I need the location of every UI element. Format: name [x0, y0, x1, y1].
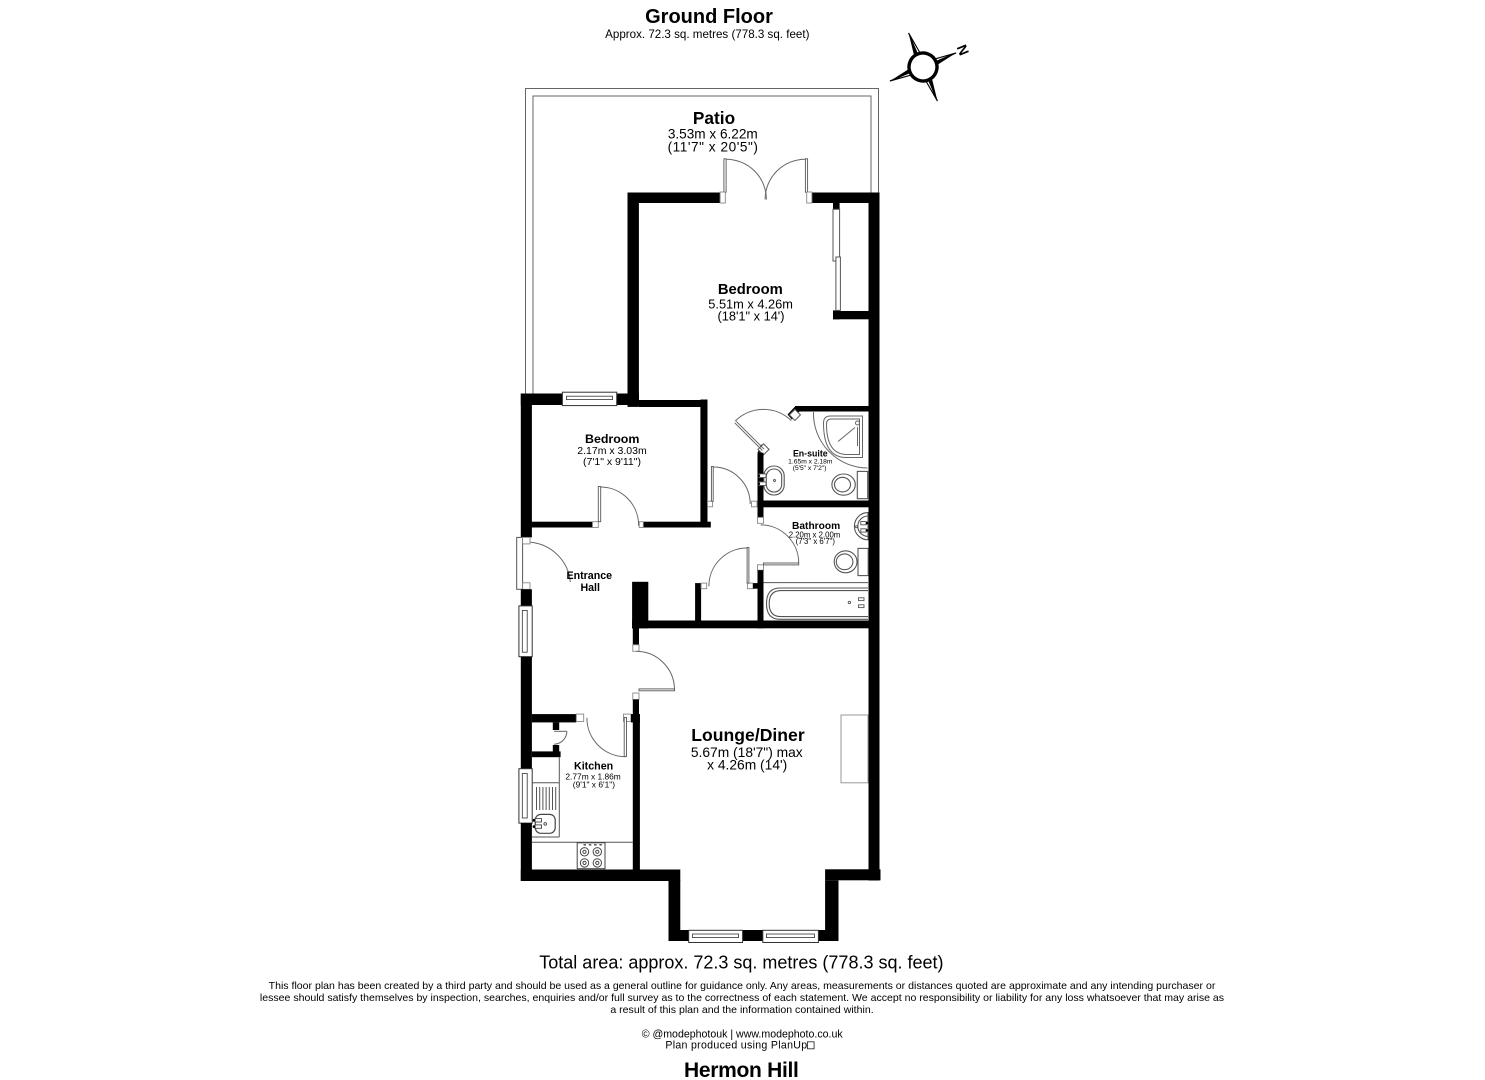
svg-text:Entrance: Entrance	[567, 570, 613, 582]
svg-text:En-suite: En-suite	[793, 448, 828, 458]
svg-text:Approx. 72.3 sq. metres (778.3: Approx. 72.3 sq. metres (778.3 sq. feet)	[605, 28, 809, 41]
svg-text:(9'1" x 6'1"): (9'1" x 6'1")	[573, 780, 615, 790]
svg-text:Lounge/Diner: Lounge/Diner	[691, 725, 805, 745]
svg-text:a result of this plan and the: a result of this plan and the informatio…	[610, 1004, 873, 1016]
svg-text:Total area: approx. 72.3 sq. m: Total area: approx. 72.3 sq. metres (778…	[539, 953, 943, 973]
svg-text:Patio: Patio	[693, 108, 735, 128]
svg-text:(7'1" x 9'11"): (7'1" x 9'11")	[583, 456, 641, 468]
svg-text:(18'1" x 14'): (18'1" x 14')	[717, 309, 784, 324]
svg-text:(5'5" x 7'2"): (5'5" x 7'2")	[793, 465, 827, 472]
svg-text:(7'3" x 6'7"): (7'3" x 6'7")	[796, 537, 836, 546]
svg-text:Hermon Hill: Hermon Hill	[684, 1059, 799, 1080]
svg-text:(11'7" x 20'5"): (11'7" x 20'5")	[668, 139, 759, 154]
svg-text:This floor plan has been creat: This floor plan has been created by a th…	[269, 980, 1216, 992]
svg-text:lessee should satisfy themselv: lessee should satisfy themselves by insp…	[260, 992, 1224, 1004]
svg-text:Plan produced using PlanUp.: Plan produced using PlanUp.	[665, 1040, 810, 1052]
svg-text:Ground Floor: Ground Floor	[645, 6, 773, 28]
svg-text:Hall: Hall	[580, 582, 600, 594]
svg-text:x 4.26m (14'): x 4.26m (14')	[707, 757, 787, 772]
